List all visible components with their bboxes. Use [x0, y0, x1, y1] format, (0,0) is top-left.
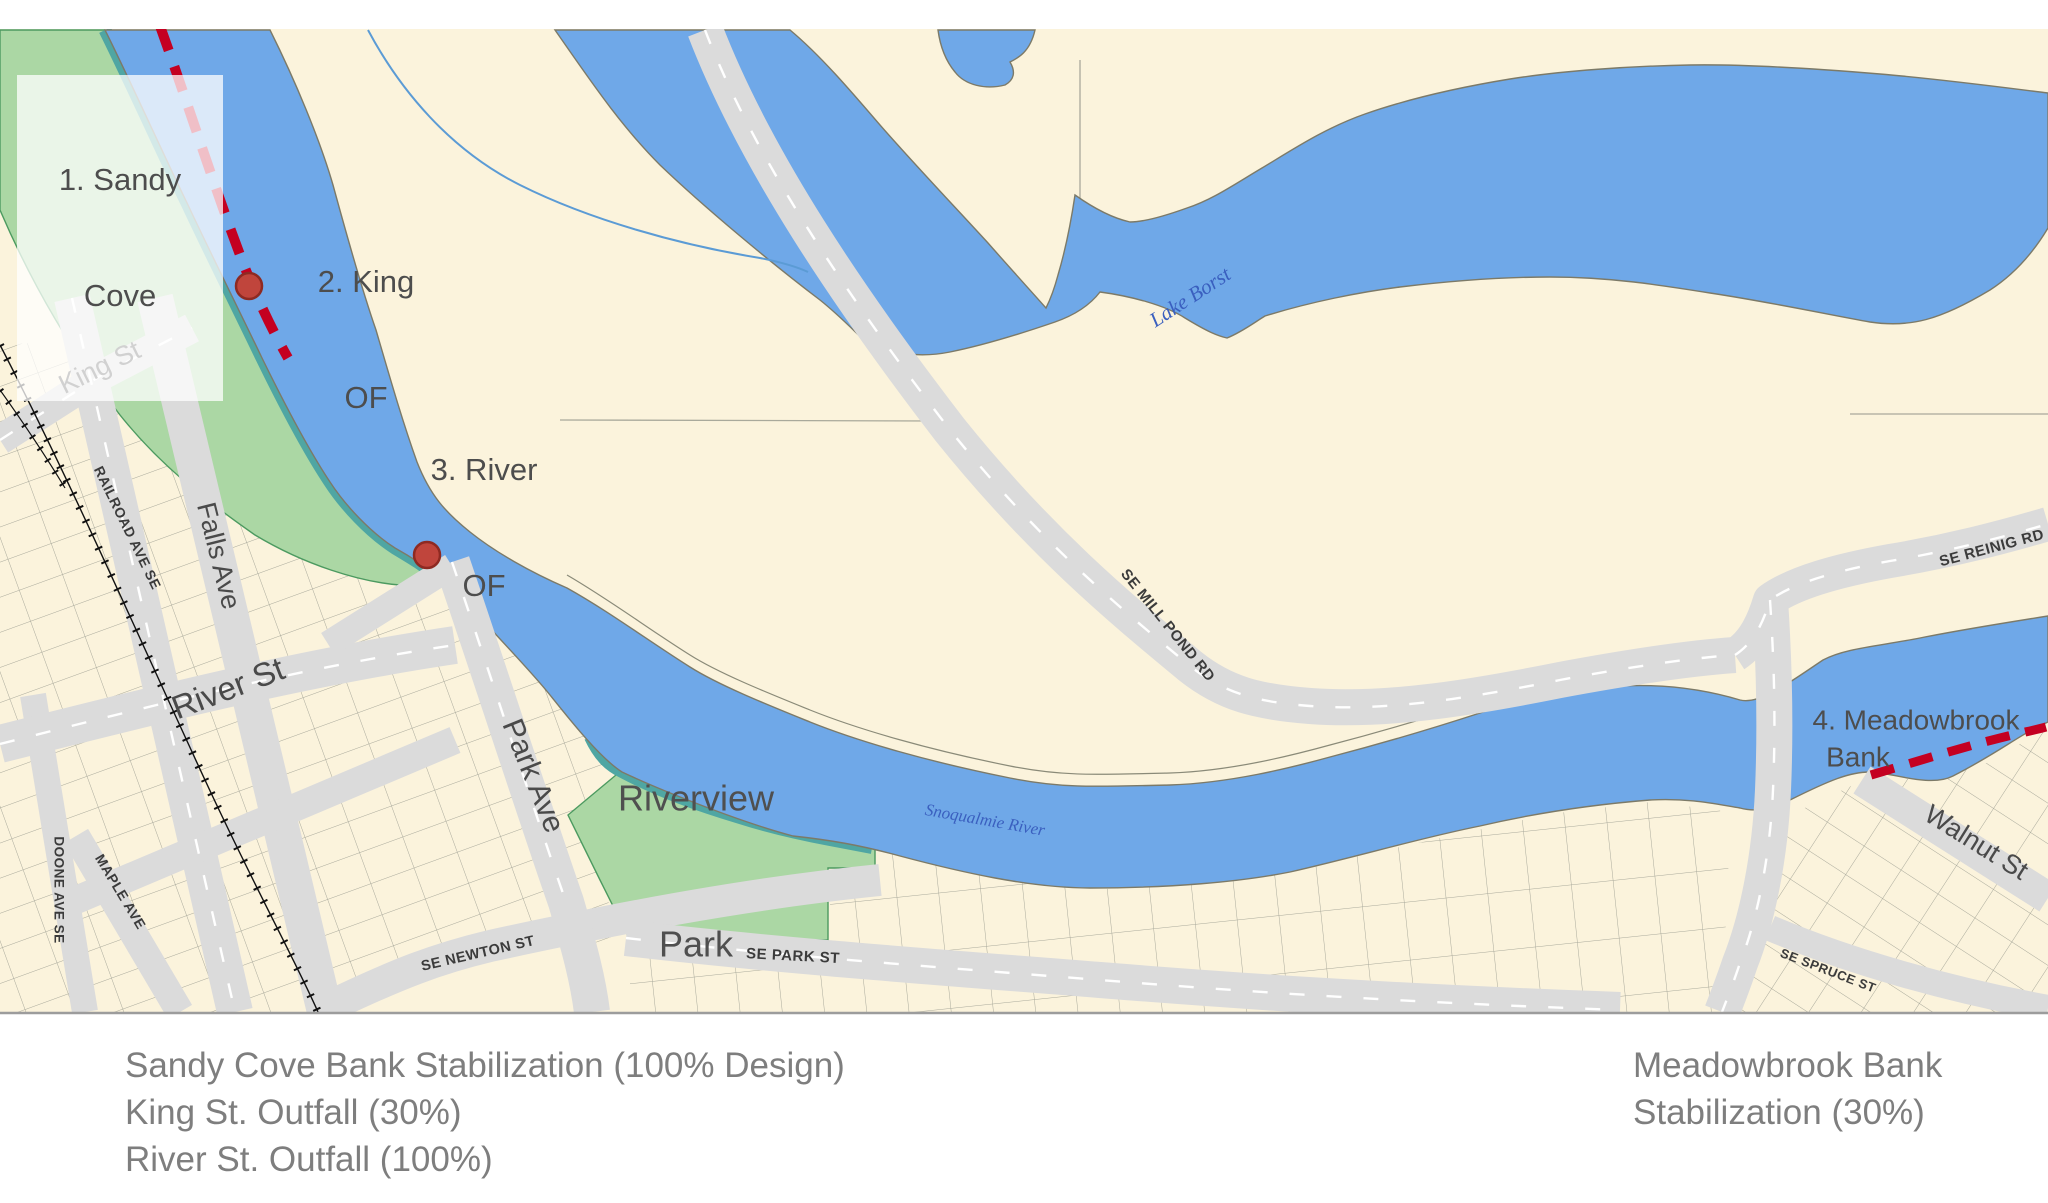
- project-label-river-of-line2: OF: [431, 567, 538, 606]
- project-label-meadowbrook-line1: 4. Meadowbrook: [1812, 703, 2019, 738]
- project-label-river-of-line1: 3. River: [431, 451, 538, 490]
- project-label-meadowbrook-line2: Bank: [1826, 740, 1890, 775]
- project-label-king-of-line2: OF: [318, 379, 415, 418]
- caption-sandy-cove: Sandy Cove Bank Stabilization (100% Desi…: [125, 1042, 845, 1089]
- project-label-king-of-line1: 2. King: [318, 263, 415, 302]
- project-label-river-of: 3. River OF: [431, 373, 538, 683]
- park-label-riverview-line1: Riverview: [618, 775, 774, 824]
- park-label-riverview: Riverview Park: [618, 678, 774, 1067]
- top-margin: [0, 0, 2048, 29]
- project-label-sandy-cove: 1. Sandy Cove: [17, 75, 223, 401]
- park-label-riverview-line2: Park: [618, 921, 774, 970]
- caption-left-block: Sandy Cove Bank Stabilization (100% Desi…: [125, 1042, 845, 1183]
- project-label-king-of: 2. King OF: [318, 185, 415, 495]
- map-figure: King St Falls Ave RAILROAD AVE SE River …: [0, 0, 2048, 1203]
- caption-king-outfall: King St. Outfall (30%): [125, 1089, 845, 1136]
- king-outfall-marker: [236, 273, 262, 299]
- caption-right-block: Meadowbrook Bank Stabilization (30%): [1633, 1042, 1942, 1136]
- caption-meadowbrook-line1: Meadowbrook Bank: [1633, 1042, 1942, 1089]
- street-label-doone-ave: DOONE AVE SE: [50, 836, 67, 943]
- project-label-sandy-cove-line1: 1. Sandy: [31, 161, 209, 200]
- caption-meadowbrook-line2: Stabilization (30%): [1633, 1089, 1942, 1136]
- project-label-sandy-cove-line2: Cove: [31, 277, 209, 316]
- caption-river-outfall: River St. Outfall (100%): [125, 1136, 845, 1183]
- map-canvas: [0, 0, 2048, 1203]
